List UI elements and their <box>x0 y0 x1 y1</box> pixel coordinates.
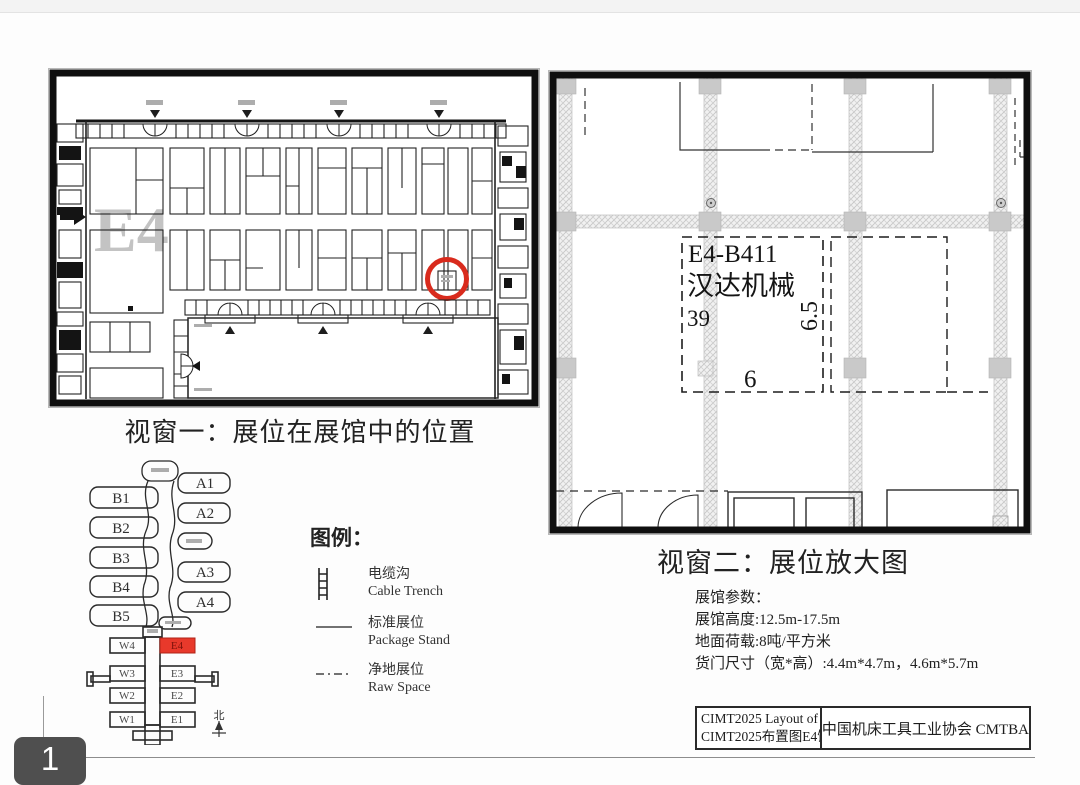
page-number-badge: 1 <box>14 737 86 785</box>
legend: 图例： 电缆沟 Cable Trench 标准展位 Package Stand … <box>310 522 550 709</box>
legend-item-package-stand: 标准展位 Package Stand <box>310 615 550 649</box>
window1-floorplan-panel: E4 <box>48 68 540 408</box>
hall-label-w2: W2 <box>119 690 135 702</box>
window1-title: 视窗一：展位在展馆中的位置 <box>80 412 520 449</box>
legend-label-en: Package Stand <box>368 632 450 649</box>
layout-title-en: CIMT2025 Layout of E4 <box>701 710 816 728</box>
hall-label-e2: E2 <box>171 690 183 702</box>
hall-label-a2: A2 <box>196 506 214 522</box>
hall-label-b1: B1 <box>112 491 130 507</box>
params-line-load: 地面荷载:8吨/平方米 <box>695 631 978 653</box>
north-compass-icon: 北 <box>212 709 226 737</box>
hall-label-e4: E4 <box>171 640 184 652</box>
booth-enlarged-drawing: E4-B411 汉达机械 39 6.5 6 <box>548 70 1032 535</box>
legend-label-en: Cable Trench <box>368 583 443 600</box>
hall-label-b5: B5 <box>112 609 130 625</box>
panel-outer-frame <box>549 71 1032 535</box>
drawing-title-block: CIMT2025 Layout of E4 CIMT2025布置图E4馆 中国机… <box>695 706 1031 750</box>
hall-label-w3: W3 <box>119 668 135 680</box>
legend-label-cn: 电缆沟 <box>368 566 443 583</box>
photo-top-edge <box>0 0 1080 13</box>
hall-label-b3: B3 <box>112 551 130 567</box>
solid-line-icon <box>310 615 368 645</box>
hall-label-w1: W1 <box>119 714 135 726</box>
legend-label-cn: 标准展位 <box>368 615 450 632</box>
dash-dot-line-icon <box>310 662 368 692</box>
params-line-cargo-door: 货门尺寸（宽*高）:4.4m*4.7m，4.6m*5.7m <box>695 653 978 675</box>
params-heading: 展馆参数： <box>695 587 978 609</box>
layout-title-cn: CIMT2025布置图E4馆 <box>701 728 816 746</box>
window2-title: 视窗二：展位放大图 <box>633 541 933 580</box>
hall-parameters: 展馆参数： 展馆高度:12.5m-17.5m 地面荷载:8吨/平方米 货门尺寸（… <box>695 587 978 675</box>
hall-label-a1: A1 <box>196 476 214 492</box>
legend-title: 图例： <box>310 522 550 552</box>
hall-label-a3: A3 <box>196 565 214 581</box>
legend-label-cn: 净地展位 <box>368 662 431 679</box>
hall-label-w4: W4 <box>119 640 135 652</box>
booth-name: 汉达机械 <box>687 271 795 301</box>
association-name: 中国机床工具工业协会 CMTBA <box>822 708 1029 748</box>
hall-e4-floorplan-drawing: E4 <box>48 68 540 408</box>
booth-area: 39 <box>687 306 710 331</box>
booth-id: E4-B411 <box>688 241 777 268</box>
compass-label: 北 <box>214 709 225 722</box>
legend-label-en: Raw Space <box>368 679 431 696</box>
we-halls <box>87 627 218 745</box>
legend-item-raw-space: 净地展位 Raw Space <box>310 662 550 696</box>
title-block-layout: CIMT2025 Layout of E4 CIMT2025布置图E4馆 <box>697 708 822 748</box>
legend-item-cable-trench: 电缆沟 Cable Trench <box>310 566 550 602</box>
central-corridor <box>142 461 178 627</box>
booth-depth-dim: 6.5 <box>797 301 823 331</box>
window2-enlarged-panel: E4-B411 汉达机械 39 6.5 6 <box>548 70 1032 535</box>
page-edge-horizontal <box>43 757 1035 758</box>
params-line-height: 展馆高度:12.5m-17.5m <box>695 609 978 631</box>
hall-label-b2: B2 <box>112 521 130 537</box>
hall-label-e1: E1 <box>171 714 183 726</box>
booth-width-dim: 6 <box>744 366 757 393</box>
hall-label-b4: B4 <box>112 580 130 596</box>
venue-overview-map: B1 B2 B3 B4 B5 A1 A2 A3 A4 W4 W3 W2 W1 E… <box>85 455 315 745</box>
hall-label-a4: A4 <box>196 595 215 611</box>
hall-label-e3: E3 <box>171 668 184 680</box>
cable-trench-icon <box>310 566 368 602</box>
